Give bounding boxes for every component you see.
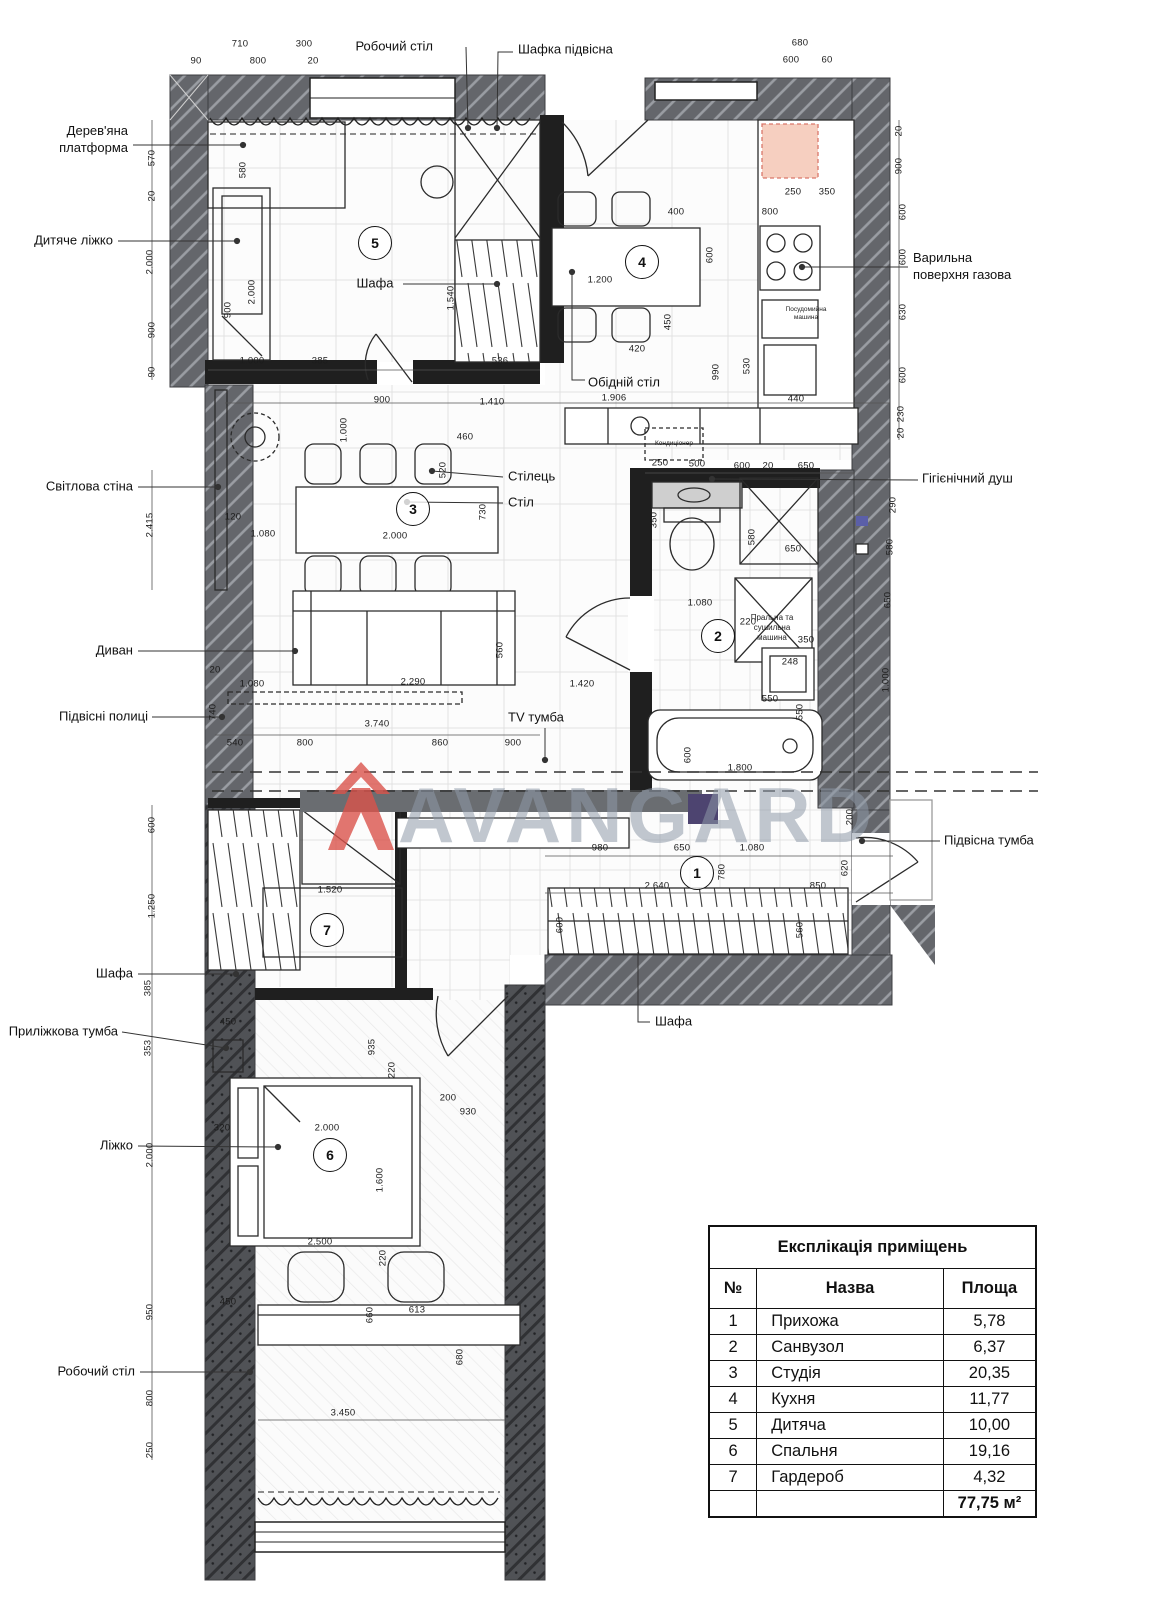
legend-title: Експлікація приміщень bbox=[709, 1226, 1036, 1269]
legend-header-row: №НазваПлоща bbox=[709, 1269, 1036, 1309]
legend-row: 3Студія20,35 bbox=[709, 1361, 1036, 1387]
bathroom-vanity bbox=[652, 482, 742, 508]
sofa bbox=[293, 591, 515, 685]
bathtub bbox=[648, 710, 822, 780]
wall-socket bbox=[856, 516, 868, 526]
legend-row: 4Кухня11,77 bbox=[709, 1387, 1036, 1413]
floor-plan-canvas: AVANGARD 710300908002068060060570202.000… bbox=[0, 0, 1155, 1600]
legend-row: 1Прихожа5,78 bbox=[709, 1309, 1036, 1335]
studio-table bbox=[296, 487, 498, 553]
fridge bbox=[762, 124, 818, 178]
entry-step bbox=[890, 905, 935, 965]
legend-row: 5Дитяча10,00 bbox=[709, 1413, 1036, 1439]
window-kitchen bbox=[655, 82, 757, 100]
entry-porch bbox=[890, 800, 932, 900]
watermark-text: AVANGARD bbox=[398, 771, 877, 859]
legend-col-header-2: Площа bbox=[943, 1269, 1036, 1309]
work-desk bbox=[258, 1305, 520, 1345]
dining-table bbox=[552, 228, 700, 306]
legend-col-header-1: Назва bbox=[757, 1269, 944, 1309]
window-bedroom bbox=[255, 1522, 505, 1552]
wall-switch bbox=[856, 544, 868, 554]
kitchen-lower-counter bbox=[565, 408, 858, 444]
legend-row: 7Гардероб4,32 bbox=[709, 1465, 1036, 1491]
legend-col-header-0: № bbox=[709, 1269, 757, 1309]
legend-row: 2Санвузол6,37 bbox=[709, 1335, 1036, 1361]
legend-total-row: 77,75 м² bbox=[709, 1491, 1036, 1518]
legend-table: Експлікація приміщень№НазваПлоща1Прихожа… bbox=[708, 1225, 1037, 1518]
legend-total-area: 77,75 м² bbox=[943, 1491, 1036, 1518]
watermark: AVANGARD bbox=[328, 762, 877, 859]
legend-title-row: Експлікація приміщень bbox=[709, 1226, 1036, 1269]
legend-row: 6Спальня19,16 bbox=[709, 1439, 1036, 1465]
wardrobe-rail bbox=[208, 810, 300, 970]
